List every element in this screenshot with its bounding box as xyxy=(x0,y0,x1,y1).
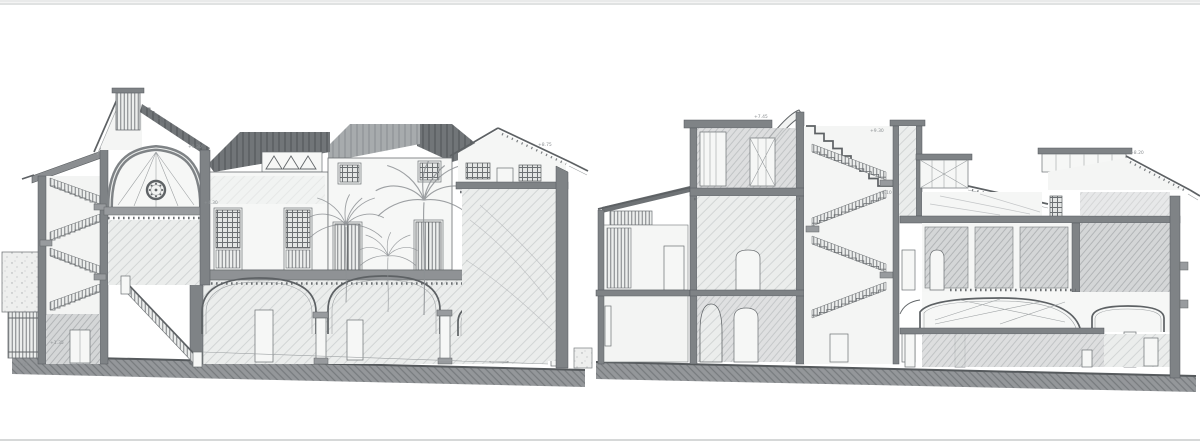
terrace-wall xyxy=(2,252,40,312)
great-hall xyxy=(900,192,1180,367)
dome-rosette xyxy=(147,181,165,199)
roof-lantern xyxy=(112,88,144,130)
hall-floor xyxy=(922,334,1104,367)
attic-window-1 xyxy=(338,163,361,184)
arched-door-mid xyxy=(736,250,760,290)
service-rooms xyxy=(596,225,690,362)
tower-left-wall xyxy=(38,176,46,364)
newel-post-bottom xyxy=(193,352,202,367)
glazed-partition xyxy=(750,138,775,186)
clerestory-left xyxy=(916,154,972,188)
tall-block-left-wall xyxy=(690,128,697,364)
eaves-overhang xyxy=(570,162,588,171)
tower-cap xyxy=(890,120,925,126)
courtyard-facade-right xyxy=(328,158,452,270)
wardrobe xyxy=(607,228,631,288)
arched-door-lower xyxy=(734,308,758,362)
balustrade xyxy=(126,282,198,368)
service-floor xyxy=(596,290,690,296)
hall-panel-2 xyxy=(975,227,1013,288)
chapel xyxy=(94,88,210,285)
sections-drawing: +9.30 +4.30 +8.75 +1.35 ±0.00 +7.45 +9.3… xyxy=(0,0,1200,444)
wall-ledge-1 xyxy=(1180,262,1188,270)
grey-roof xyxy=(328,124,420,162)
level-mark: +8.20 xyxy=(1130,150,1144,156)
level-mark: +4.30 xyxy=(204,200,218,206)
drawing-sheet: +9.30 +4.30 +8.75 +1.35 ±0.00 +7.45 +9.3… xyxy=(0,0,1200,444)
hall-door-right xyxy=(1144,338,1158,366)
floor-beam xyxy=(456,182,568,189)
level-mark: +9.30 xyxy=(870,128,884,134)
dome-entablature xyxy=(104,207,206,215)
sheet-top-edge xyxy=(0,0,1200,3)
vault-pier-1 xyxy=(905,334,915,367)
tower-door-upper xyxy=(902,250,915,290)
courtyard-facade-left xyxy=(203,172,328,270)
right-section xyxy=(596,110,1200,378)
garden-fence xyxy=(8,312,40,358)
roof-slab xyxy=(684,120,772,128)
stair-hall xyxy=(804,126,893,364)
service-door xyxy=(664,246,684,290)
slot-window xyxy=(605,306,611,346)
ceiling-slab xyxy=(900,216,1180,223)
level-mark: +8.75 xyxy=(538,142,552,148)
dome-room xyxy=(108,220,200,285)
floor-slab-1 xyxy=(690,188,804,196)
level-mark: +6.10 xyxy=(878,190,892,196)
tall-block xyxy=(684,110,804,364)
section-room xyxy=(462,189,556,361)
right-outer-wall xyxy=(1170,196,1188,378)
level-mark: +7.45 xyxy=(754,114,768,120)
level-mark: ±0.00 xyxy=(14,362,28,368)
chapel-right-wall xyxy=(200,150,210,285)
right-wing xyxy=(450,128,592,368)
upper-wall-band xyxy=(922,192,1042,216)
vault-arch-left-springer xyxy=(900,300,920,314)
clerestory-trusses xyxy=(262,152,322,172)
tower-right-wall xyxy=(100,148,108,364)
hall-divider-wall xyxy=(1072,223,1080,292)
grille-window-1 xyxy=(214,208,242,270)
outer-wall xyxy=(556,166,568,368)
wall-ledge-2 xyxy=(1180,300,1188,308)
tall-block-right-wall xyxy=(796,112,804,364)
arcade-door-2 xyxy=(347,320,363,360)
newel-post-top xyxy=(121,276,130,294)
shuttered-window-1 xyxy=(333,222,362,270)
vault-beam xyxy=(900,328,1104,334)
buttress xyxy=(574,348,592,368)
stair-door xyxy=(830,334,848,362)
hall-panel-3 xyxy=(1020,227,1068,288)
slatted-screen xyxy=(610,211,652,225)
level-mark: +1.35 xyxy=(50,340,64,346)
left-section xyxy=(2,88,592,368)
hall-panel-right xyxy=(1080,223,1170,292)
shuttered-window-2 xyxy=(414,220,443,270)
hall-furniture-1 xyxy=(1082,350,1092,367)
grille-window-2 xyxy=(284,208,312,270)
arched-niche xyxy=(700,304,722,362)
floor-slab-2 xyxy=(690,290,804,296)
lean-to-left-wall xyxy=(598,210,604,364)
level-mark: +9.30 xyxy=(188,144,202,150)
hall-door-left xyxy=(930,250,944,290)
